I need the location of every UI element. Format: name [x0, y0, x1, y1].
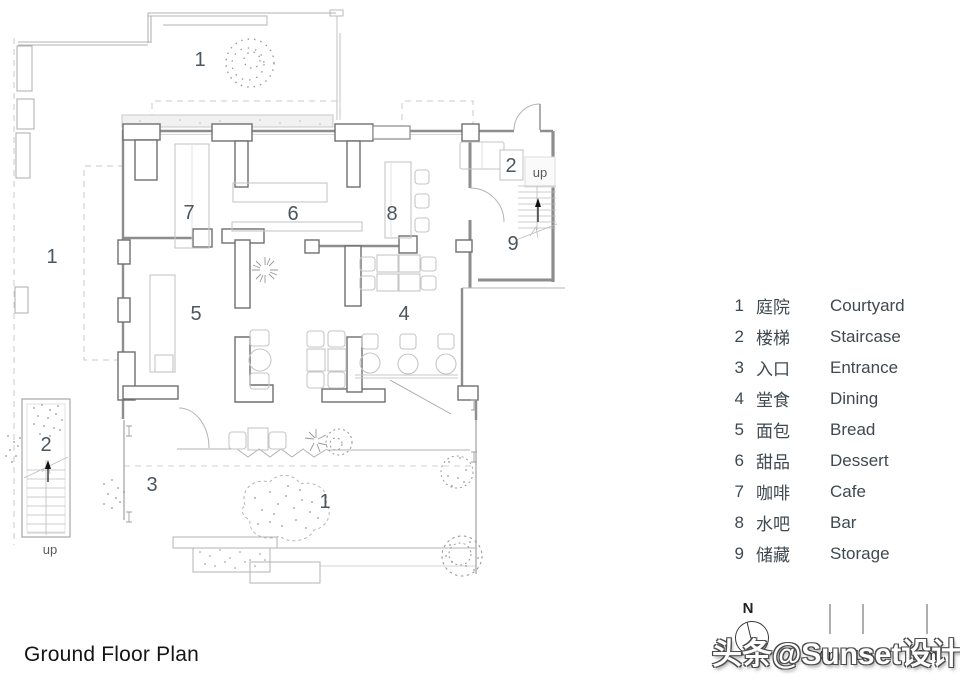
- bread-counter-end: [155, 355, 173, 372]
- shrub-icon: [242, 475, 329, 540]
- legend-zh-label: 咖啡: [756, 479, 830, 504]
- legend-en-label: Staircase: [830, 327, 938, 347]
- legend-zh-label: 楼梯: [756, 324, 830, 349]
- legend-row-staircase: 2 楼梯 Staircase: [728, 321, 938, 352]
- table: [399, 255, 420, 272]
- legend-zh-label: 储藏: [756, 541, 830, 566]
- gravel-dots: [6, 436, 20, 462]
- room-label-staircase-upper: 2: [505, 155, 516, 177]
- table: [307, 349, 325, 371]
- watermark: 头条@Sunset设计: [712, 629, 960, 673]
- chair: [307, 372, 324, 388]
- up-label-upper: up: [533, 165, 547, 180]
- north-label: N: [743, 600, 754, 617]
- shrub-icon: [326, 429, 352, 455]
- room-label-cafe: 7: [183, 202, 194, 224]
- room-label-bread: 5: [190, 303, 201, 325]
- chair: [229, 432, 246, 449]
- shrub-icon: [441, 456, 473, 488]
- chair: [421, 257, 436, 271]
- floor-plan-page: 1 1 1 7 6 8 2 up 9 5 4 3 2 up N 0m 1m 3m…: [0, 0, 960, 682]
- legend-en-label: Dessert: [830, 451, 938, 471]
- wall-joint-marker: [126, 400, 477, 522]
- legend-num: 9: [728, 544, 744, 564]
- legend-num: 1: [728, 296, 744, 316]
- round-table: [398, 354, 418, 374]
- legend-zh-label: 庭院: [756, 293, 830, 318]
- room-label-storage: 9: [507, 233, 518, 255]
- page-title: Ground Floor Plan: [24, 643, 199, 667]
- legend-en-label: Cafe: [830, 482, 938, 502]
- bench: [355, 375, 458, 378]
- chair: [421, 276, 436, 290]
- legend-en-label: Bread: [830, 420, 938, 440]
- legend-row-dining: 4 堂食 Dining: [728, 383, 938, 414]
- building-walls: [122, 130, 565, 574]
- bar-stool: [415, 218, 429, 232]
- chair: [328, 331, 345, 347]
- room-label-staircase-lower: 2: [40, 434, 51, 456]
- entrance-door-arc: [514, 104, 540, 130]
- legend-en-label: Bar: [830, 513, 938, 533]
- chair: [328, 372, 345, 388]
- legend-num: 6: [728, 451, 744, 471]
- stair-bottom-left: [22, 399, 70, 537]
- legend-row-courtyard: 1 庭院 Courtyard: [728, 290, 938, 321]
- table: [399, 274, 420, 291]
- room-label-courtyard-bottom: 1: [319, 491, 330, 513]
- legend-zh-label: 甜品: [756, 448, 830, 473]
- legend-zh-label: 水吧: [756, 510, 830, 535]
- legend-num: 7: [728, 482, 744, 502]
- chair: [250, 330, 269, 346]
- round-table: [360, 353, 380, 373]
- chair: [400, 334, 416, 349]
- chair: [360, 276, 375, 290]
- planter-dots: [200, 550, 265, 568]
- diagonal-door-leaf: [390, 380, 451, 414]
- bread-counter: [150, 275, 175, 372]
- legend-en-label: Dining: [830, 389, 938, 409]
- wall-pillars: [118, 124, 479, 402]
- round-table: [249, 349, 271, 371]
- table: [377, 255, 398, 272]
- tree-icon: [226, 39, 274, 87]
- legend-row-cafe: 7 咖啡 Cafe: [728, 476, 938, 507]
- gravel-dots: [104, 480, 124, 508]
- legend-row-bar: 8 水吧 Bar: [728, 507, 938, 538]
- chair: [438, 334, 454, 349]
- site-boundary: [15, 10, 343, 313]
- legend-row-bread: 5 面包 Bread: [728, 414, 938, 445]
- storage-door-arc: [470, 188, 504, 222]
- legend-row-dessert: 6 甜品 Dessert: [728, 445, 938, 476]
- room-label-entrance: 3: [146, 474, 157, 496]
- legend-num: 2: [728, 327, 744, 347]
- legend-zh-label: 面包: [756, 417, 830, 442]
- chair: [269, 432, 286, 449]
- legend-en-label: Entrance: [830, 358, 938, 378]
- plant-icon: [252, 257, 278, 283]
- legend-row-entrance: 3 入口 Entrance: [728, 352, 938, 383]
- stair-up-arrow: [535, 198, 541, 207]
- round-table: [436, 354, 456, 374]
- legend-num: 4: [728, 389, 744, 409]
- legend-num: 3: [728, 358, 744, 378]
- legend-en-label: Courtyard: [830, 296, 938, 316]
- legend-row-storage: 9 储藏 Storage: [728, 538, 938, 569]
- chair: [362, 334, 378, 349]
- planters: [173, 537, 320, 583]
- table: [248, 428, 268, 450]
- legend-num: 8: [728, 513, 744, 533]
- bar-stool: [415, 170, 429, 184]
- palm-icon: [305, 429, 327, 452]
- room-label-dining: 4: [398, 303, 409, 325]
- bar-counter: [385, 162, 411, 238]
- room-label-bar: 8: [386, 203, 397, 225]
- furniture: [126, 144, 477, 522]
- room-label-courtyard-left: 1: [46, 246, 57, 268]
- table: [328, 349, 346, 371]
- room-label-courtyard-top: 1: [194, 49, 205, 71]
- up-label-lower: up: [43, 542, 57, 557]
- terrace-door-arc: [179, 408, 209, 448]
- legend-zh-label: 堂食: [756, 386, 830, 411]
- bar-stool: [415, 194, 429, 208]
- legend-zh-label: 入口: [756, 355, 830, 380]
- legend-num: 5: [728, 420, 744, 440]
- gravel-dots: [34, 405, 62, 436]
- table: [377, 274, 398, 291]
- legend: 1 庭院 Courtyard 2 楼梯 Staircase 3 入口 Entra…: [728, 290, 938, 569]
- chair: [360, 257, 375, 271]
- legend-en-label: Storage: [830, 544, 938, 564]
- room-label-dessert: 6: [287, 203, 298, 225]
- chair: [307, 331, 324, 347]
